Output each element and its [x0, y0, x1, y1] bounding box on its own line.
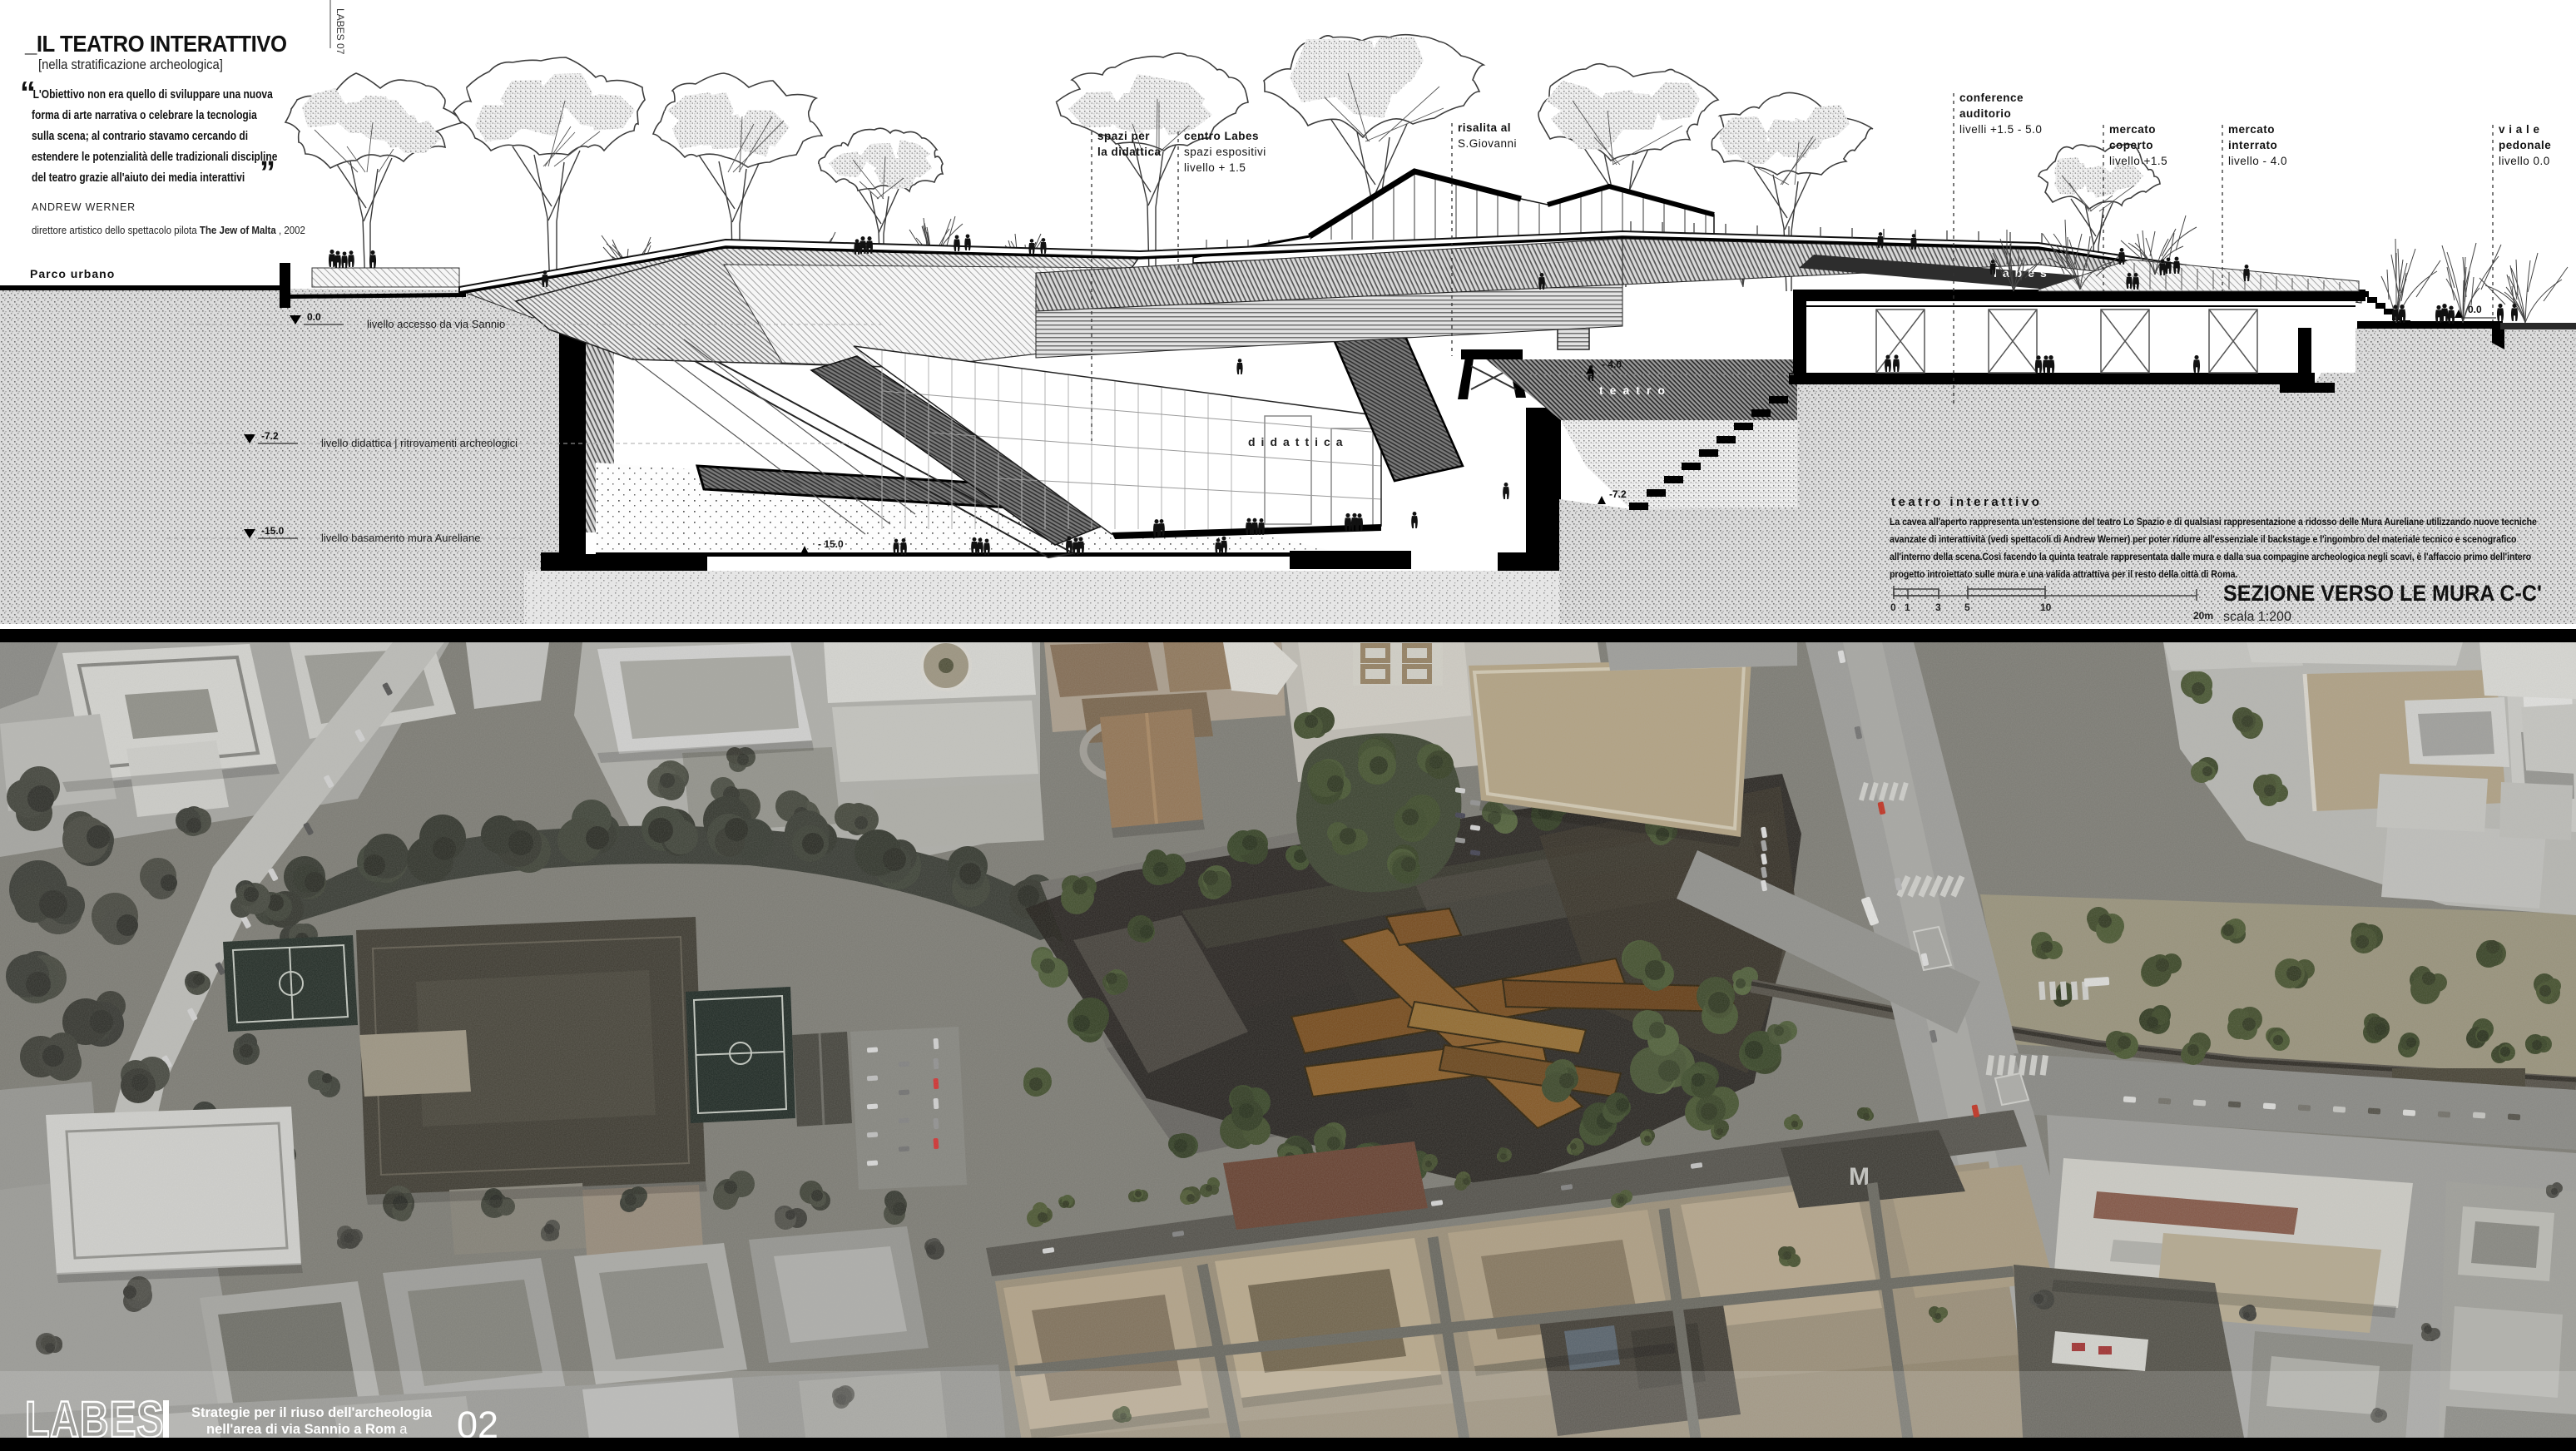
svg-text:mercato: mercato: [2228, 123, 2275, 136]
svg-text:10: 10: [2040, 602, 2052, 613]
svg-text:- 4.0: - 4.0: [1602, 359, 1622, 370]
svg-text:[nella stratificazione archeol: [nella stratificazione archeologica]: [38, 57, 223, 72]
svg-text:conference: conference: [1959, 92, 2024, 104]
svg-text:livello accesso da via Sannio: livello accesso da via Sannio: [367, 318, 505, 330]
svg-text:5: 5: [1964, 602, 1970, 613]
svg-text:la didattica: la didattica: [1097, 146, 1162, 158]
svg-text:teatro interattivo: teatro interattivo: [1891, 495, 2042, 509]
svg-text:sulla scena; al contrario stav: sulla scena; al contrario stavamo cercan…: [32, 129, 248, 143]
svg-text:livello 0.0: livello 0.0: [2499, 155, 2550, 167]
svg-text:SEZIONE VERSO LE MURA C-C': SEZIONE VERSO LE MURA C-C': [2223, 580, 2542, 606]
svg-text:pedonale: pedonale: [2499, 139, 2551, 151]
svg-text:livello +1.5: livello +1.5: [2109, 155, 2167, 167]
svg-text:0.0: 0.0: [2468, 304, 2482, 315]
svg-text:coperto: coperto: [2109, 139, 2153, 151]
svg-text:3: 3: [1935, 602, 1941, 613]
svg-text:scala 1:200: scala 1:200: [2223, 610, 2291, 624]
svg-text:”: ”: [260, 156, 275, 191]
svg-text:- 15.0: - 15.0: [818, 538, 844, 550]
svg-text:avanzate di interattività (ve: avanzate di interattività (vedi spettaco…: [1890, 534, 2517, 545]
svg-text:estendere le potenzialità dell: estendere le potenzialità delle tradizio…: [32, 150, 278, 164]
svg-text:livello didattica | ritrovamen: livello didattica | ritrovamenti archeol…: [321, 437, 518, 449]
svg-text:forma di arte narrativa o cele: forma di arte narrativa o celebrare la t…: [32, 108, 257, 122]
svg-text:ANDREW WERNER: ANDREW WERNER: [32, 201, 136, 213]
svg-text:v i a l e: v i a l e: [2499, 123, 2540, 136]
svg-text:livello + 1.5: livello + 1.5: [1184, 161, 1246, 174]
svg-text:0.0: 0.0: [307, 311, 321, 323]
svg-text:livello basamento mura Aurelia: livello basamento mura Aureliane: [321, 532, 481, 544]
svg-text:didattica: didattica: [1248, 435, 1349, 448]
svg-text:L'Obiettivo non era quello di: L'Obiettivo non era quello di sviluppare…: [33, 87, 274, 102]
svg-text:auditorio: auditorio: [1959, 107, 2011, 120]
svg-text:Parco urbano: Parco urbano: [30, 267, 115, 280]
svg-text:1: 1: [1905, 602, 1910, 613]
svg-text:livelli +1.5 - 5.0: livelli +1.5 - 5.0: [1959, 123, 2042, 136]
svg-text:LABES 07: LABES 07: [334, 8, 346, 55]
svg-text:mercato: mercato: [2109, 123, 2156, 136]
svg-text:del teatro grazie all'aiuto de: del teatro grazie all'aiuto dei media in…: [32, 171, 245, 185]
svg-text:-7.2: -7.2: [261, 430, 279, 442]
svg-text:Strategie per il riuso dell'ar: Strategie per il riuso dell'archeologia: [191, 1405, 433, 1420]
svg-text:spazi per: spazi per: [1097, 130, 1150, 142]
svg-text:S.Giovanni: S.Giovanni: [1458, 137, 1517, 150]
svg-text:0: 0: [1890, 602, 1896, 613]
svg-text:20m: 20m: [2193, 610, 2213, 622]
svg-text:spazi espositivi: spazi espositivi: [1184, 146, 1266, 158]
svg-text:centro Labes: centro Labes: [1184, 130, 1259, 142]
svg-text:interrato: interrato: [2228, 139, 2277, 151]
svg-text:_IL TEATRO INTERATTIVO: _IL TEATRO INTERATTIVO: [24, 31, 287, 57]
svg-text:livello - 4.0: livello - 4.0: [2228, 155, 2287, 167]
svg-text:nell'area di via Sannio a Rom: nell'area di via Sannio a Rom a: [206, 1422, 408, 1437]
svg-text:-15.0: -15.0: [261, 525, 285, 537]
svg-text:_: _: [443, 1418, 456, 1440]
svg-text:teatro: teatro: [1599, 384, 1672, 397]
svg-text:progetto introiettato sulle mu: progetto introiettato sulle mura e una v…: [1890, 569, 2237, 580]
svg-text:-7.2: -7.2: [1609, 488, 1627, 500]
svg-text:direttore artistico dello spet: direttore artistico dello spettacolo pil…: [32, 225, 305, 237]
svg-text:risalita al: risalita al: [1458, 121, 1511, 134]
svg-text:all'interno della scena.Così f: all'interno della scena.Così facendo la …: [1890, 552, 2531, 562]
svg-text:La cavea all'aperto rappresen: La cavea all'aperto rappresenta un'esten…: [1890, 517, 2537, 527]
